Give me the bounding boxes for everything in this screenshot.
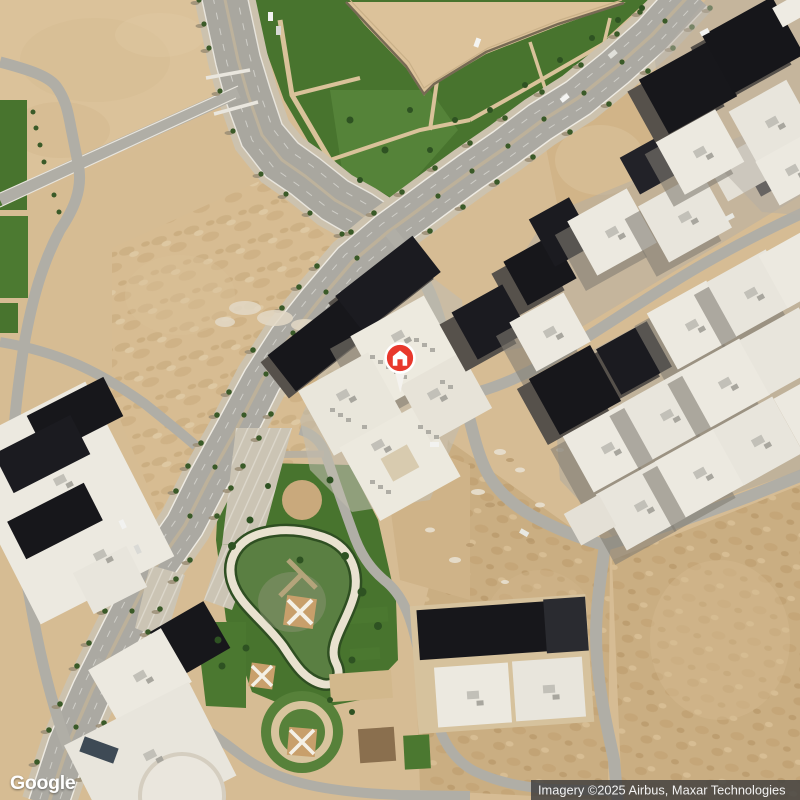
svg-text:Google: Google — [10, 772, 76, 794]
svg-text:Imagery ©2025 Airbus, Maxar Te: Imagery ©2025 Airbus, Maxar Technologies — [538, 783, 786, 798]
